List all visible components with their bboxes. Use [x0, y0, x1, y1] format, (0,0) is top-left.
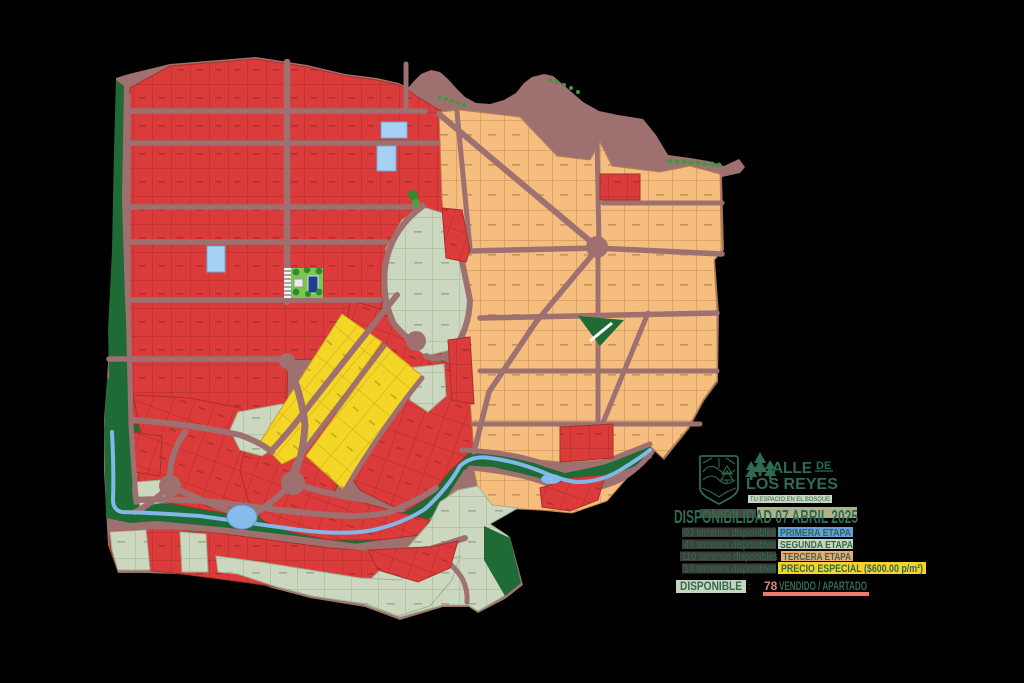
svg-text:49 terrenos disponibles: 49 terrenos disponibles — [684, 539, 776, 551]
svg-text:PRIMERA ETAPA: PRIMERA ETAPA — [780, 528, 851, 539]
svg-text:78: 78 — [764, 579, 778, 593]
svg-text:DE: DE — [816, 460, 831, 472]
svg-text:ALLE: ALLE — [772, 460, 812, 477]
svg-text:14 terrenos disponibles: 14 terrenos disponibles — [684, 563, 776, 575]
svg-text:TU ESPACIO EN EL BOSQUE: TU ESPACIO EN EL BOSQUE — [750, 497, 830, 503]
svg-text:VENDIDO / APARTADO: VENDIDO / APARTADO — [779, 579, 867, 593]
svg-text:PRECIO ESPECIAL ($600.00 p/m²): PRECIO ESPECIAL ($600.00 p/m²) — [781, 563, 923, 575]
svg-text:DISPONIBILIDAD 07 ABRIL 2025: DISPONIBILIDAD 07 ABRIL 2025 — [674, 507, 858, 527]
svg-text:TERCERA ETAPA: TERCERA ETAPA — [783, 552, 851, 563]
svg-text:SEGUNDA ETAPA: SEGUNDA ETAPA — [780, 540, 853, 551]
svg-text:DISPONIBLE: DISPONIBLE — [680, 579, 742, 593]
svg-text:03 terrenos disponibles: 03 terrenos disponibles — [684, 527, 776, 539]
svg-text::: : — [748, 581, 751, 591]
svg-text:110 terrenos disponibles: 110 terrenos disponibles — [682, 551, 778, 563]
svg-text:LOS REYES: LOS REYES — [746, 476, 838, 493]
